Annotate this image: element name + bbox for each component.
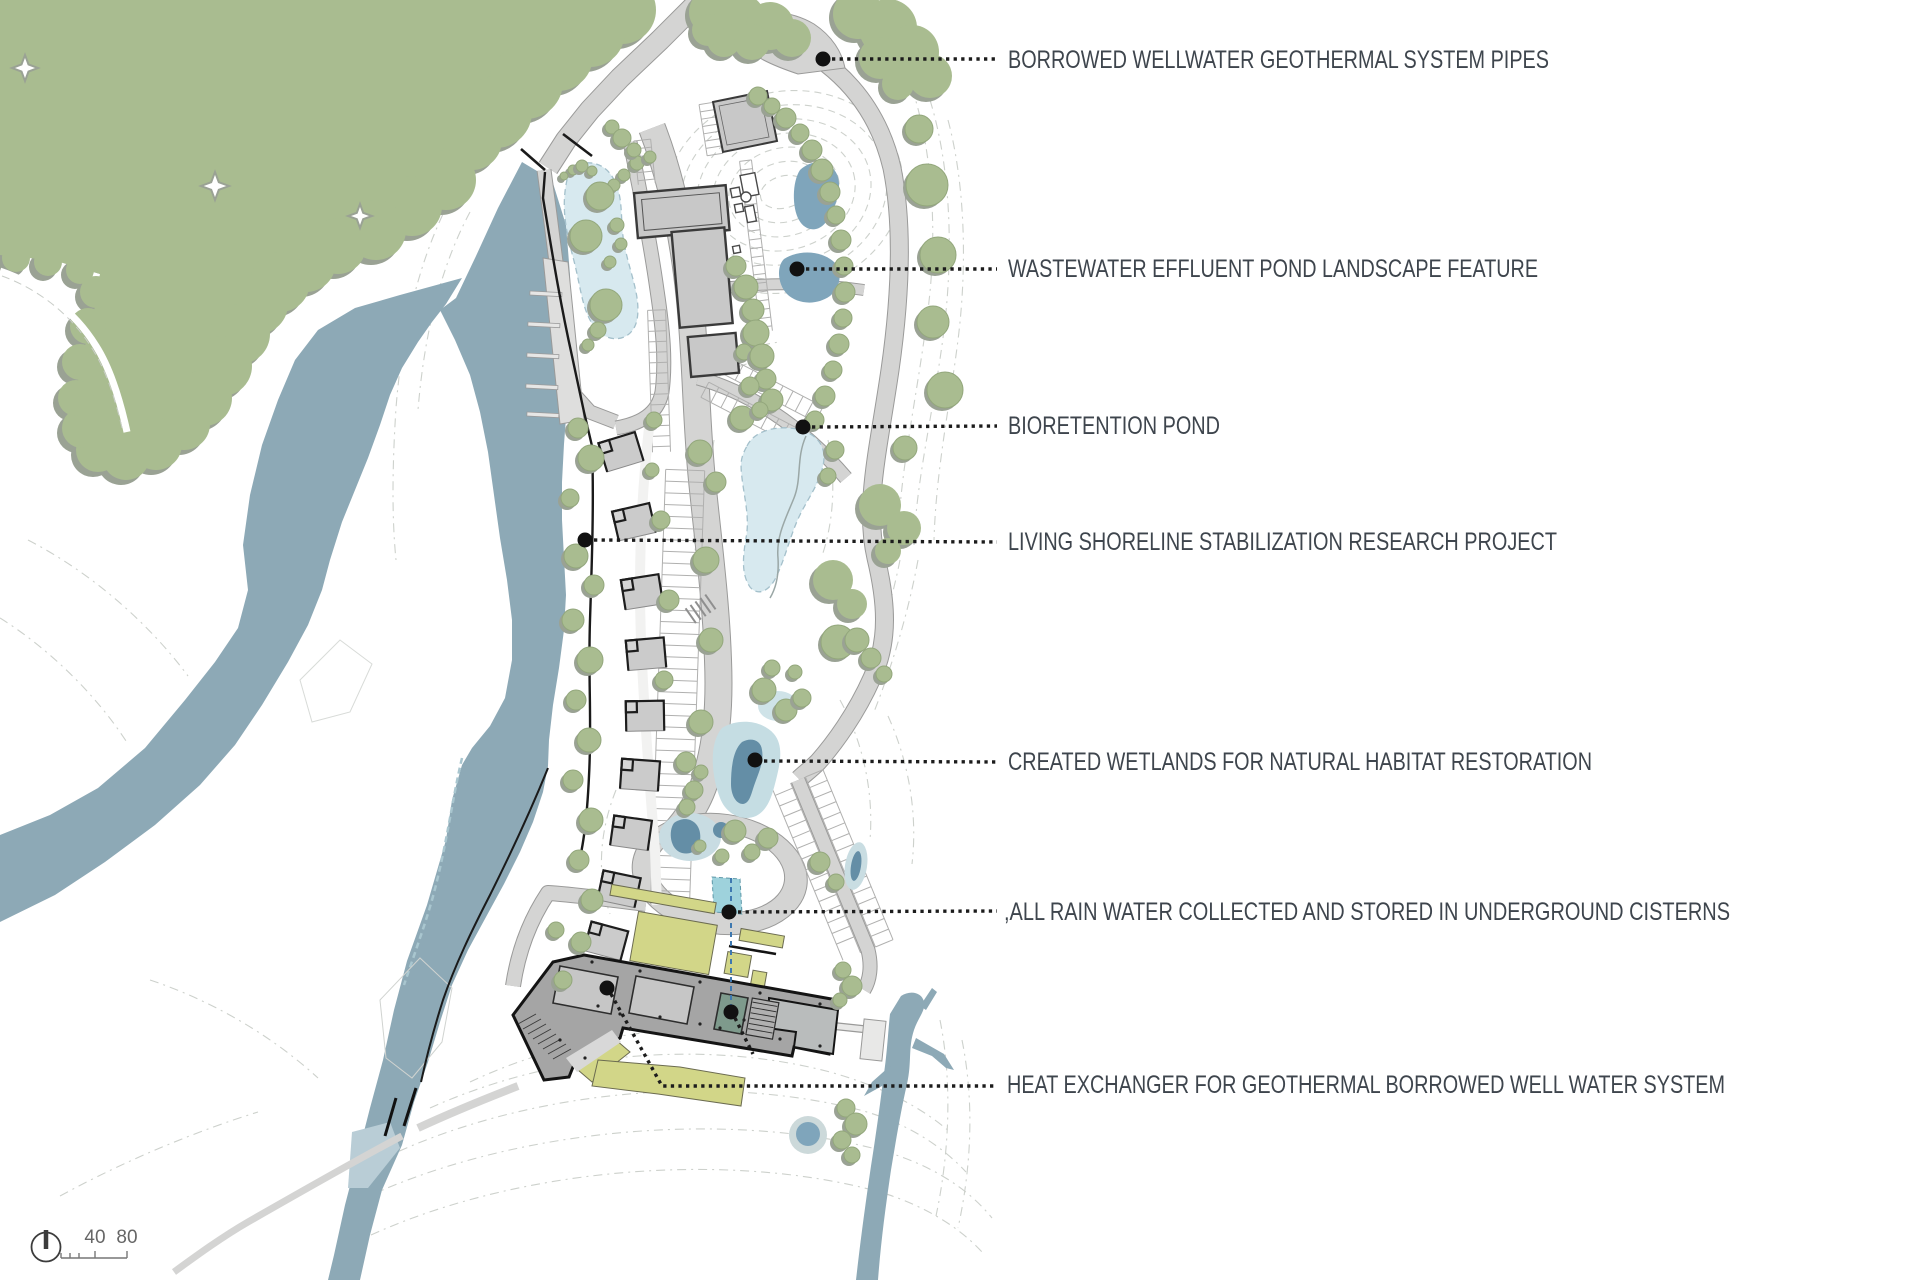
svg-text:WASTEWATER EFFLUENT POND LANDS: WASTEWATER EFFLUENT POND LANDSCAPE FEATU… xyxy=(1008,255,1538,283)
svg-text:BIORETENTION POND: BIORETENTION POND xyxy=(1008,412,1220,440)
svg-text:,ALL RAIN WATER COLLECTED AND: ,ALL RAIN WATER COLLECTED AND STORED IN … xyxy=(1004,898,1730,926)
svg-text:HEAT EXCHANGER FOR GEOTHERMAL: HEAT EXCHANGER FOR GEOTHERMAL BORROWED W… xyxy=(1007,1071,1725,1099)
svg-text:40: 40 xyxy=(84,1227,105,1248)
svg-text:80: 80 xyxy=(116,1227,137,1248)
svg-text:CREATED WETLANDS FOR NATURAL H: CREATED WETLANDS FOR NATURAL HABITAT RES… xyxy=(1008,748,1592,776)
svg-text:BORROWED WELLWATER GEOTHERMAL: BORROWED WELLWATER GEOTHERMAL SYSTEM PIP… xyxy=(1008,46,1549,74)
svg-text:LIVING SHORELINE STABILIZATION: LIVING SHORELINE STABILIZATION RESEARCH … xyxy=(1008,528,1557,556)
